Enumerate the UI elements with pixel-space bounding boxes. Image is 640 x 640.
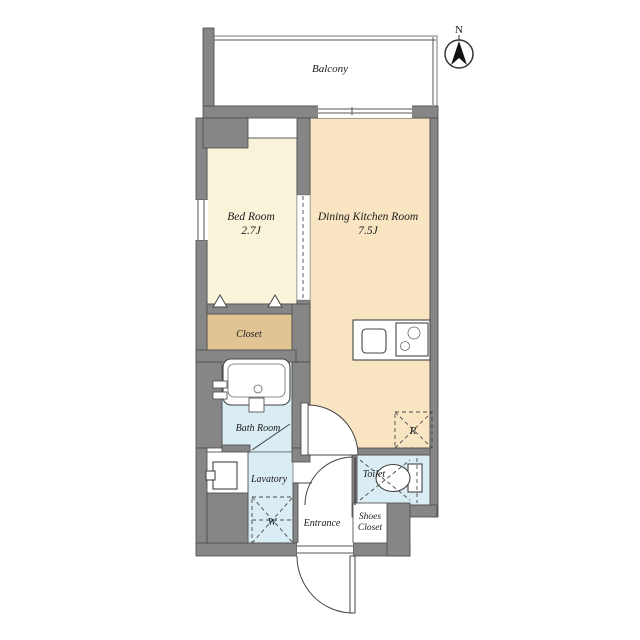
window-glass: [318, 105, 412, 118]
pipe-space-void: [248, 118, 297, 138]
wall-segment: [297, 118, 310, 195]
toilet-label: Toilet: [363, 469, 386, 480]
wall-segment: [293, 483, 298, 543]
wall-segment: [196, 448, 207, 543]
washing-machine-label: W: [268, 517, 278, 528]
lavatory-label: Lavatory: [250, 474, 288, 485]
washbasin-faucet: [206, 471, 215, 480]
wall-segment: [196, 362, 222, 448]
dining-kitchen-size: 7.5J: [358, 225, 378, 237]
wall-segment: [430, 118, 438, 517]
north-compass-icon: N: [445, 24, 473, 68]
entrance-threshold: [297, 543, 353, 556]
dining-kitchen-floor: [310, 118, 430, 455]
washbasin-bowl: [213, 462, 237, 489]
wall-segment: [203, 118, 248, 148]
closet-label: Closet: [236, 329, 262, 340]
wall-segment: [352, 448, 437, 455]
wall-segment: [196, 240, 207, 362]
bath-faucet-icon: [213, 392, 227, 399]
floor-plan: N Balcony Bed Room 2.7J Dining Kitchen R…: [0, 0, 640, 640]
window-left-icon: [195, 200, 208, 240]
kitchen-sink-icon: [362, 329, 386, 353]
sliding-door-icon: [297, 195, 310, 300]
stove-icon: [396, 323, 428, 356]
window-balcony-icon: [318, 105, 412, 118]
north-label: N: [455, 24, 463, 36]
door-leaf: [350, 556, 355, 613]
kitchen-counter-icon: [353, 320, 430, 360]
bath-step: [249, 398, 264, 412]
entrance-door-icon: [297, 543, 355, 613]
door-swing-arc: [297, 556, 353, 613]
lavatory-floor: [248, 452, 293, 543]
shoes-closet-label-2: Closet: [358, 523, 383, 533]
bed-room-size: 2.7J: [241, 225, 261, 237]
entrance-label: Entrance: [303, 518, 341, 529]
bed-room-label: Bed Room: [227, 211, 275, 223]
wall-segment: [196, 543, 297, 556]
bath-faucet-icon: [213, 381, 227, 388]
door-leaf: [301, 403, 308, 455]
dining-kitchen-label: Dining Kitchen Room: [317, 211, 418, 223]
bath-room-label: Bath Room: [236, 423, 281, 434]
sliding-door-gap: [297, 195, 310, 300]
balcony-label: Balcony: [312, 63, 348, 75]
window-glass: [195, 200, 208, 240]
wall-segment: [207, 493, 248, 543]
shoes-closet-label-1: Shoes: [359, 512, 381, 522]
wall-segment: [203, 28, 214, 106]
wall-segment: [387, 503, 410, 556]
floor-plan-canvas: N Balcony Bed Room 2.7J Dining Kitchen R…: [0, 0, 640, 640]
refrigerator-label: R: [409, 426, 417, 437]
wall-segment: [222, 445, 250, 452]
